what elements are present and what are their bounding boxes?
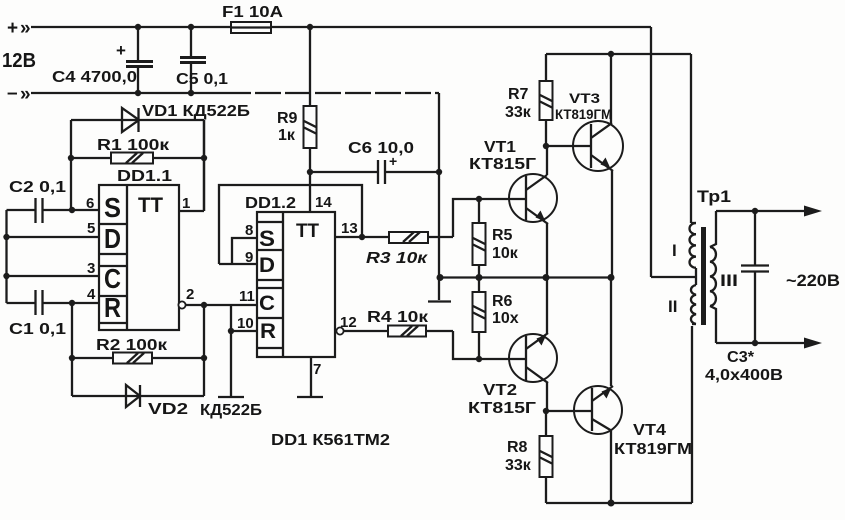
svg-text:R4 10к: R4 10к <box>367 309 429 326</box>
svg-text:КТ815Г: КТ815Г <box>469 156 536 173</box>
svg-text:R3 10к: R3 10к <box>366 250 428 267</box>
svg-text:VT2: VT2 <box>483 382 517 399</box>
svg-text:VD1 КД522Б: VD1 КД522Б <box>142 103 250 120</box>
svg-text:»: » <box>20 18 31 39</box>
svg-text:DD1.2: DD1.2 <box>245 195 296 212</box>
svg-text:1к: 1к <box>278 127 296 144</box>
svg-text:5: 5 <box>87 220 95 237</box>
svg-text:Тр1: Тр1 <box>697 187 731 206</box>
svg-text:10х: 10х <box>492 310 519 327</box>
svg-text:4,0х400В: 4,0х400В <box>705 367 783 384</box>
svg-text:III: III <box>720 271 738 290</box>
svg-text:DD1.1: DD1.1 <box>117 168 172 185</box>
svg-text:R: R <box>260 320 276 343</box>
svg-text:+: + <box>116 41 126 60</box>
svg-text:F1 10А: F1 10А <box>222 4 284 21</box>
svg-text:R: R <box>104 292 121 323</box>
svg-text:I: I <box>672 241 677 260</box>
svg-text:R8: R8 <box>507 439 528 456</box>
svg-text:R5: R5 <box>492 227 513 244</box>
svg-text:II: II <box>668 297 677 316</box>
svg-text:КД522Б: КД522Б <box>200 402 262 419</box>
svg-text:D: D <box>259 254 275 277</box>
svg-text:TT: TT <box>296 221 319 242</box>
svg-text:12В: 12В <box>2 50 36 72</box>
svg-text:C2 0,1: C2 0,1 <box>9 179 66 196</box>
svg-text:R1 100к: R1 100к <box>97 137 170 154</box>
svg-text:R2 100к: R2 100к <box>96 337 168 354</box>
svg-text:DD1 К561ТМ2: DD1 К561ТМ2 <box>271 432 390 449</box>
svg-text:VD2: VD2 <box>148 401 188 418</box>
svg-text:14: 14 <box>315 194 332 211</box>
svg-text:33к: 33к <box>505 104 532 121</box>
svg-text:33к: 33к <box>505 457 532 474</box>
svg-text:TT: TT <box>138 194 163 217</box>
svg-text:C: C <box>259 292 275 315</box>
svg-text:КТ819ГМ: КТ819ГМ <box>555 106 612 122</box>
svg-text:C5 0,1: C5 0,1 <box>176 71 228 88</box>
svg-text:4: 4 <box>87 286 96 303</box>
svg-text:3: 3 <box>87 260 95 277</box>
svg-text:+: + <box>7 18 18 39</box>
svg-text:10: 10 <box>237 315 254 332</box>
svg-text:–: – <box>7 83 18 104</box>
svg-text:VT3: VT3 <box>569 90 600 106</box>
svg-text:VT4: VT4 <box>633 422 666 439</box>
svg-text:C4 4700,0: C4 4700,0 <box>52 69 137 86</box>
svg-text:R7: R7 <box>508 86 529 103</box>
svg-text:R6: R6 <box>492 293 513 310</box>
svg-text:R9: R9 <box>277 110 298 127</box>
svg-text:С3*: С3* <box>727 349 755 366</box>
svg-text:10к: 10к <box>492 245 519 262</box>
svg-text:КТ815Г: КТ815Г <box>468 400 536 417</box>
svg-text:S: S <box>259 226 275 251</box>
svg-text:»: » <box>20 84 31 105</box>
svg-text:C6 10,0: C6 10,0 <box>348 140 414 157</box>
svg-text:13: 13 <box>341 220 358 237</box>
svg-text:C1 0,1: C1 0,1 <box>9 321 66 338</box>
svg-text:~220В: ~220В <box>786 271 840 290</box>
svg-text:C: C <box>104 263 121 294</box>
svg-text:D: D <box>104 223 121 254</box>
svg-text:11: 11 <box>239 288 255 305</box>
svg-text:2: 2 <box>186 286 194 303</box>
svg-text:1: 1 <box>182 195 190 212</box>
svg-text:7: 7 <box>313 361 321 378</box>
svg-text:VT1: VT1 <box>484 139 516 156</box>
svg-text:КТ819ГМ: КТ819ГМ <box>614 441 692 458</box>
svg-text:8: 8 <box>245 222 253 239</box>
svg-text:S: S <box>104 192 121 223</box>
